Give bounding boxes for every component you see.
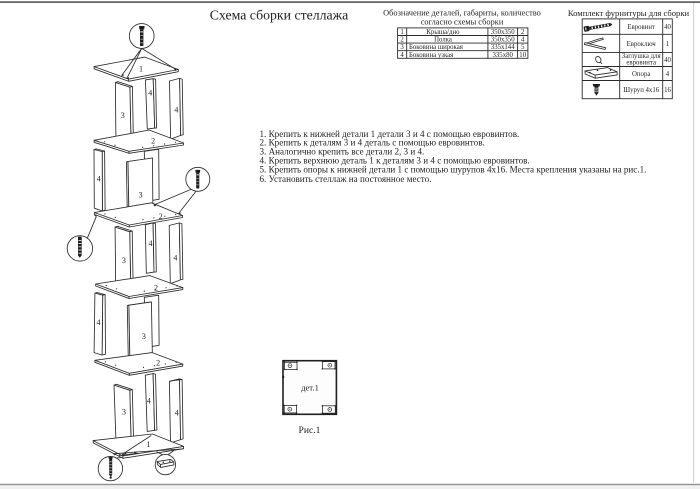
svg-text:40: 40 (664, 24, 671, 31)
svg-text:3: 3 (142, 332, 146, 341)
svg-text:2: 2 (156, 358, 160, 367)
svg-text:Боковина широкая: Боковина широкая (409, 44, 463, 51)
svg-text:Шуруп 4х16: Шуруп 4х16 (623, 87, 659, 94)
svg-text:Схема сборки стеллажа: Схема сборки стеллажа (210, 8, 349, 23)
svg-text:3: 3 (139, 190, 143, 199)
svg-text:1: 1 (400, 29, 403, 36)
svg-text:5. Крепить опоры к нижней дета: 5. Крепить опоры к нижней детали 1 с пом… (260, 165, 647, 175)
svg-text:1: 1 (139, 65, 143, 74)
svg-text:3: 3 (400, 44, 404, 51)
svg-text:2: 2 (154, 284, 158, 293)
svg-text:4: 4 (149, 239, 153, 248)
svg-text:4: 4 (521, 37, 525, 44)
svg-text:2: 2 (151, 137, 155, 146)
svg-text:4: 4 (97, 318, 101, 327)
svg-text:4: 4 (148, 89, 152, 98)
svg-text:согласно схемы сборки: согласно схемы сборки (421, 17, 504, 26)
svg-text:4: 4 (174, 106, 178, 115)
svg-text:4: 4 (147, 396, 151, 405)
svg-text:1: 1 (146, 440, 150, 449)
svg-text:4: 4 (97, 175, 101, 184)
svg-text:6. Установить стеллаж на посто: 6. Установить стеллаж на постоянное мест… (260, 174, 432, 184)
svg-text:335х144: 335х144 (491, 44, 515, 51)
svg-text:Опора: Опора (632, 71, 650, 78)
svg-text:350х350: 350х350 (491, 29, 515, 36)
svg-text:3: 3 (122, 256, 126, 265)
svg-text:Комплект фурнитуры для сборки: Комплект фурнитуры для сборки (568, 8, 690, 18)
svg-text:2: 2 (400, 37, 404, 44)
svg-text:4: 4 (173, 254, 177, 263)
svg-text:5: 5 (521, 44, 525, 51)
svg-text:Боковина узкая: Боковина узкая (409, 52, 453, 59)
svg-text:Рис.1: Рис.1 (299, 425, 321, 436)
svg-text:335х80: 335х80 (493, 52, 514, 59)
svg-text:350х350: 350х350 (491, 37, 515, 44)
svg-text:Крыша/дно: Крыша/дно (426, 29, 460, 36)
svg-text:40: 40 (664, 57, 671, 64)
svg-text:дет.1: дет.1 (301, 383, 319, 393)
svg-text:2: 2 (521, 29, 525, 36)
svg-text:3: 3 (122, 408, 126, 417)
svg-text:4: 4 (175, 409, 179, 418)
svg-text:евровинта: евровинта (626, 60, 656, 67)
svg-text:10: 10 (519, 52, 526, 59)
svg-text:4: 4 (400, 52, 404, 59)
svg-text:4: 4 (666, 71, 670, 78)
svg-text:Евроключ: Евроключ (627, 41, 657, 48)
svg-text:Обозначение деталей, габариты,: Обозначение деталей, габариты, количеств… (383, 8, 541, 17)
svg-text:3: 3 (121, 111, 125, 120)
svg-text:Полка: Полка (434, 37, 452, 44)
svg-text:16: 16 (664, 87, 671, 94)
svg-text:2: 2 (159, 212, 163, 221)
svg-text:1: 1 (666, 41, 669, 48)
svg-text:Евровинт: Евровинт (627, 24, 655, 31)
